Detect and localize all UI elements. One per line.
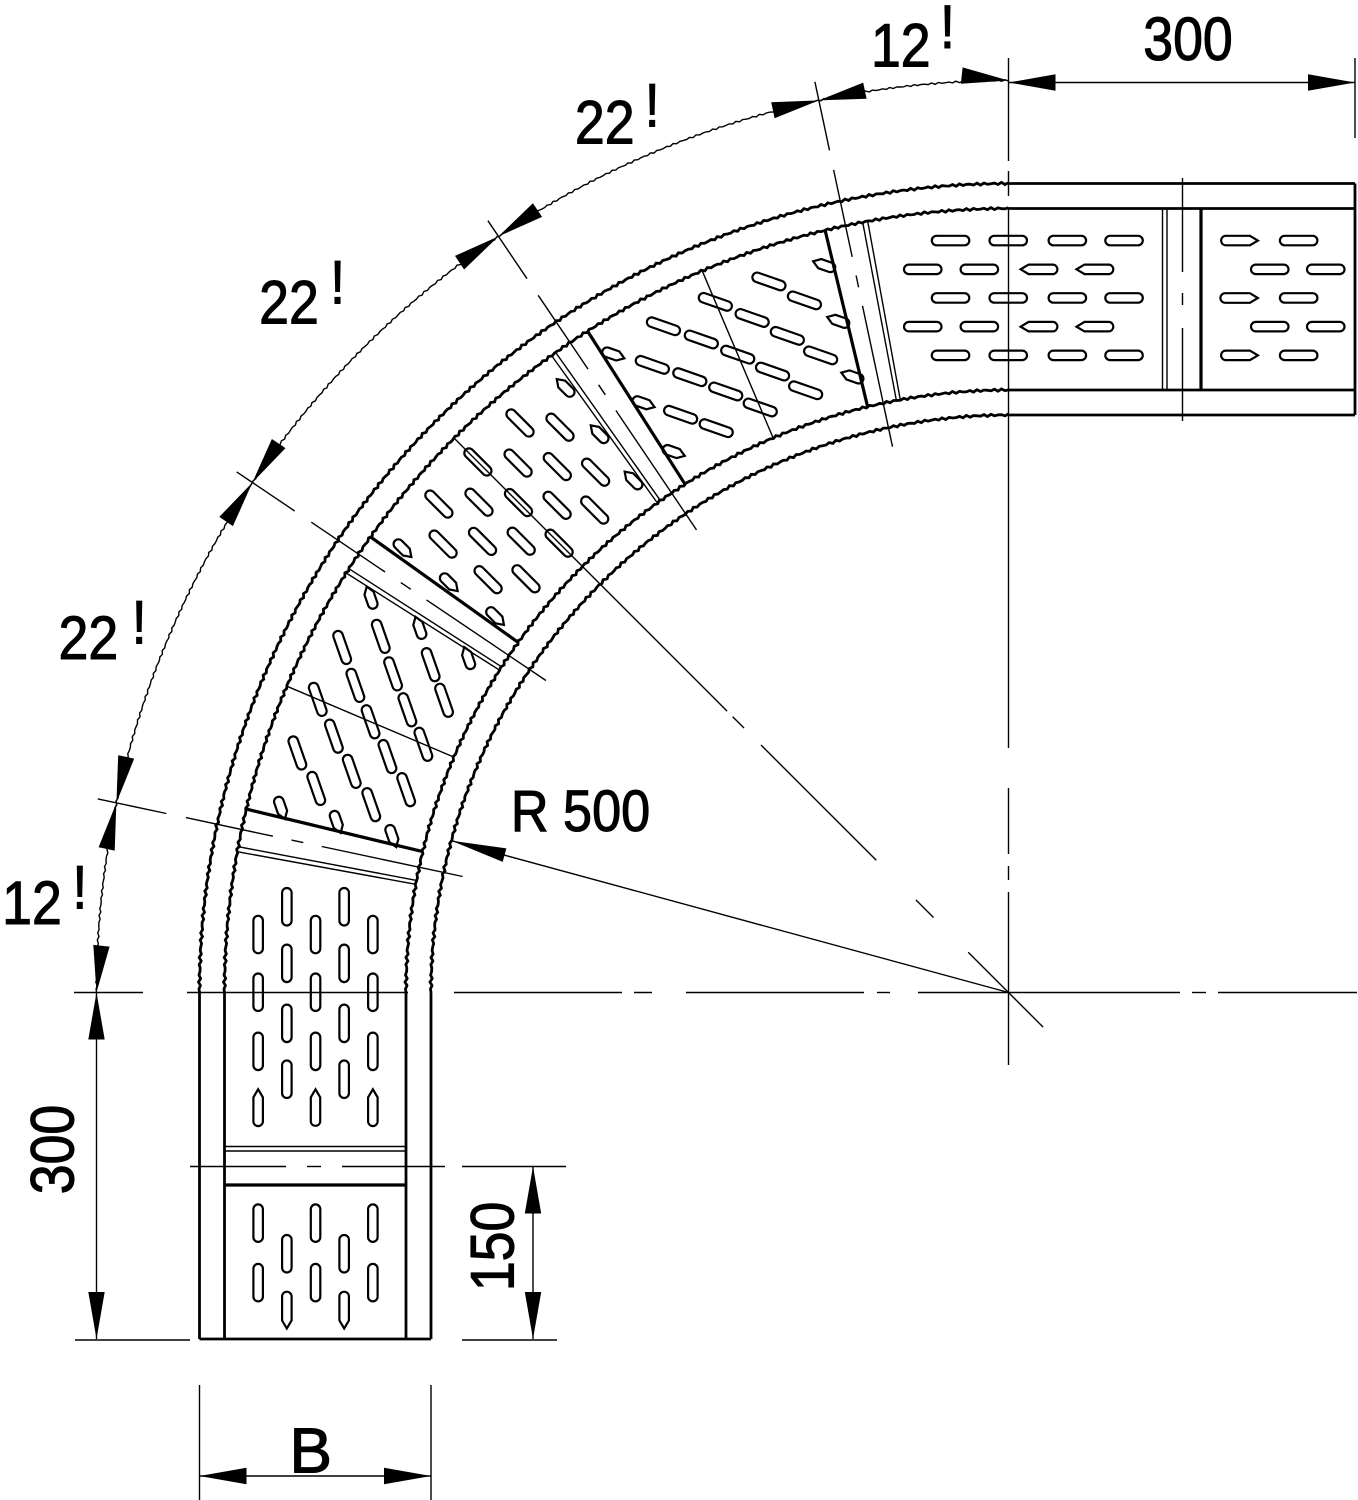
- svg-text:!: !: [330, 249, 345, 317]
- svg-text:22: 22: [259, 269, 319, 337]
- svg-text:B: B: [289, 1415, 332, 1487]
- svg-text:300: 300: [19, 1105, 87, 1195]
- svg-text:!: !: [72, 854, 87, 922]
- svg-text:22: 22: [59, 605, 119, 673]
- svg-text:!: !: [940, 0, 955, 62]
- svg-text:!: !: [645, 72, 660, 140]
- svg-text:12: 12: [871, 12, 931, 80]
- svg-text:12: 12: [2, 870, 62, 938]
- svg-text:!: !: [132, 590, 147, 658]
- svg-text:300: 300: [1143, 6, 1233, 74]
- svg-text:R 500: R 500: [511, 778, 650, 843]
- svg-text:22: 22: [575, 89, 635, 157]
- svg-text:150: 150: [459, 1202, 527, 1292]
